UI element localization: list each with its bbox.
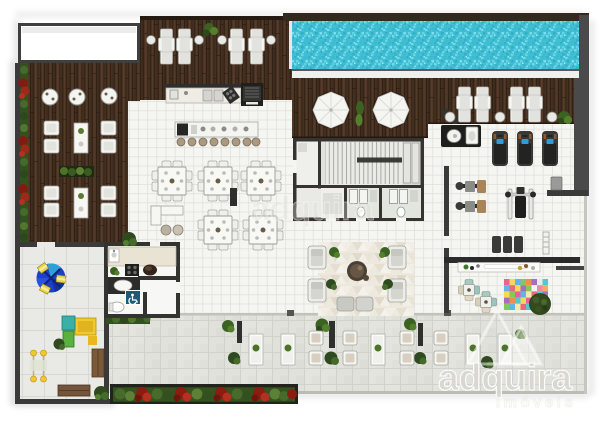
svg-text:adquira: adquira — [438, 357, 572, 398]
svg-text:adquira: adquira — [251, 190, 375, 228]
svg-text:imóveis: imóveis — [496, 394, 576, 411]
